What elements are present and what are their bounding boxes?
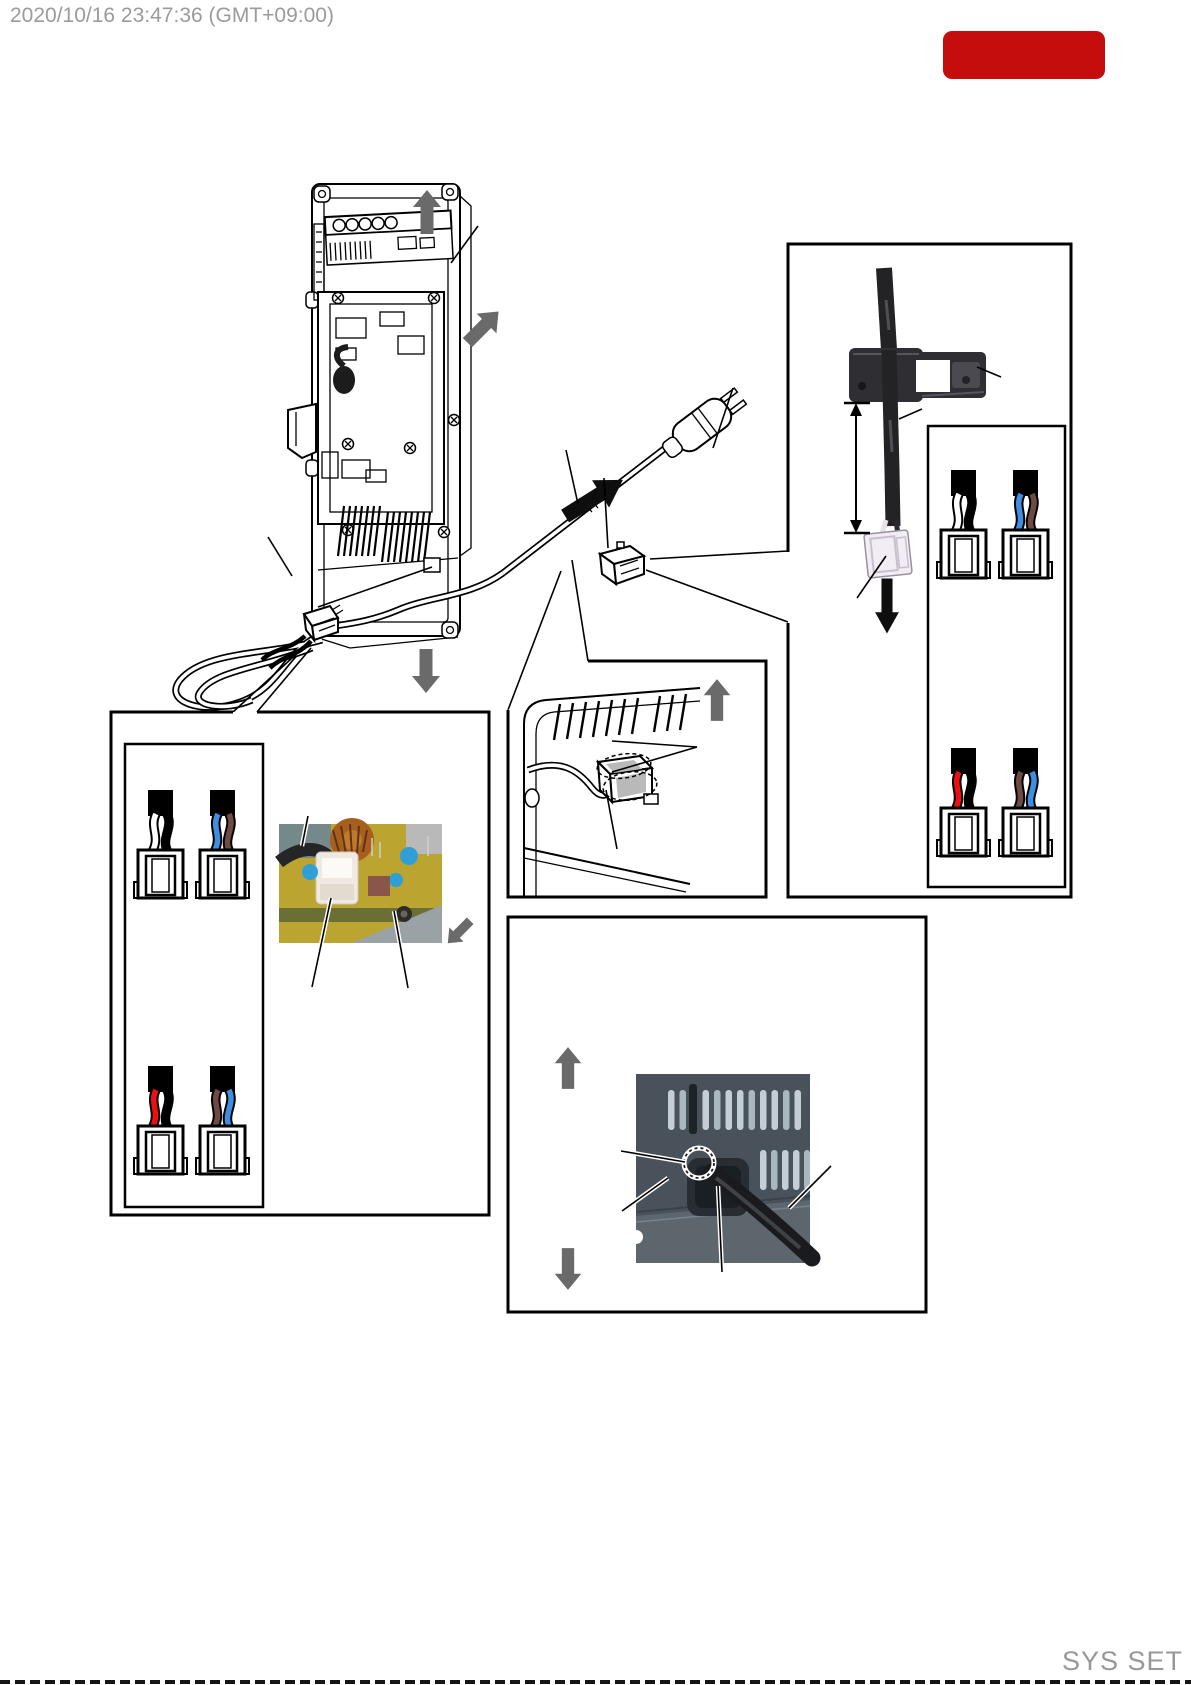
manual-page: 2020/10/16 23:47:36 (GMT+09:00) SYS SET: [0, 0, 1191, 1685]
power-plug: [656, 383, 750, 465]
cord-anchor: [600, 542, 644, 584]
chassis-drawing: [288, 184, 471, 648]
rear-panel-photo: [621, 1074, 831, 1272]
up-right-arrow-icon: [458, 302, 509, 353]
down-arrow-icon: [412, 649, 440, 693]
diagram-canvas: [0, 0, 1191, 1685]
grommet-blob: [333, 366, 355, 394]
top-bracket: [325, 211, 453, 266]
red-badge: [943, 31, 1105, 79]
insert-direction-arrow-icon: [557, 466, 632, 529]
power-cord-drawing: [176, 383, 750, 707]
cord-mount-bracket: [424, 558, 440, 572]
